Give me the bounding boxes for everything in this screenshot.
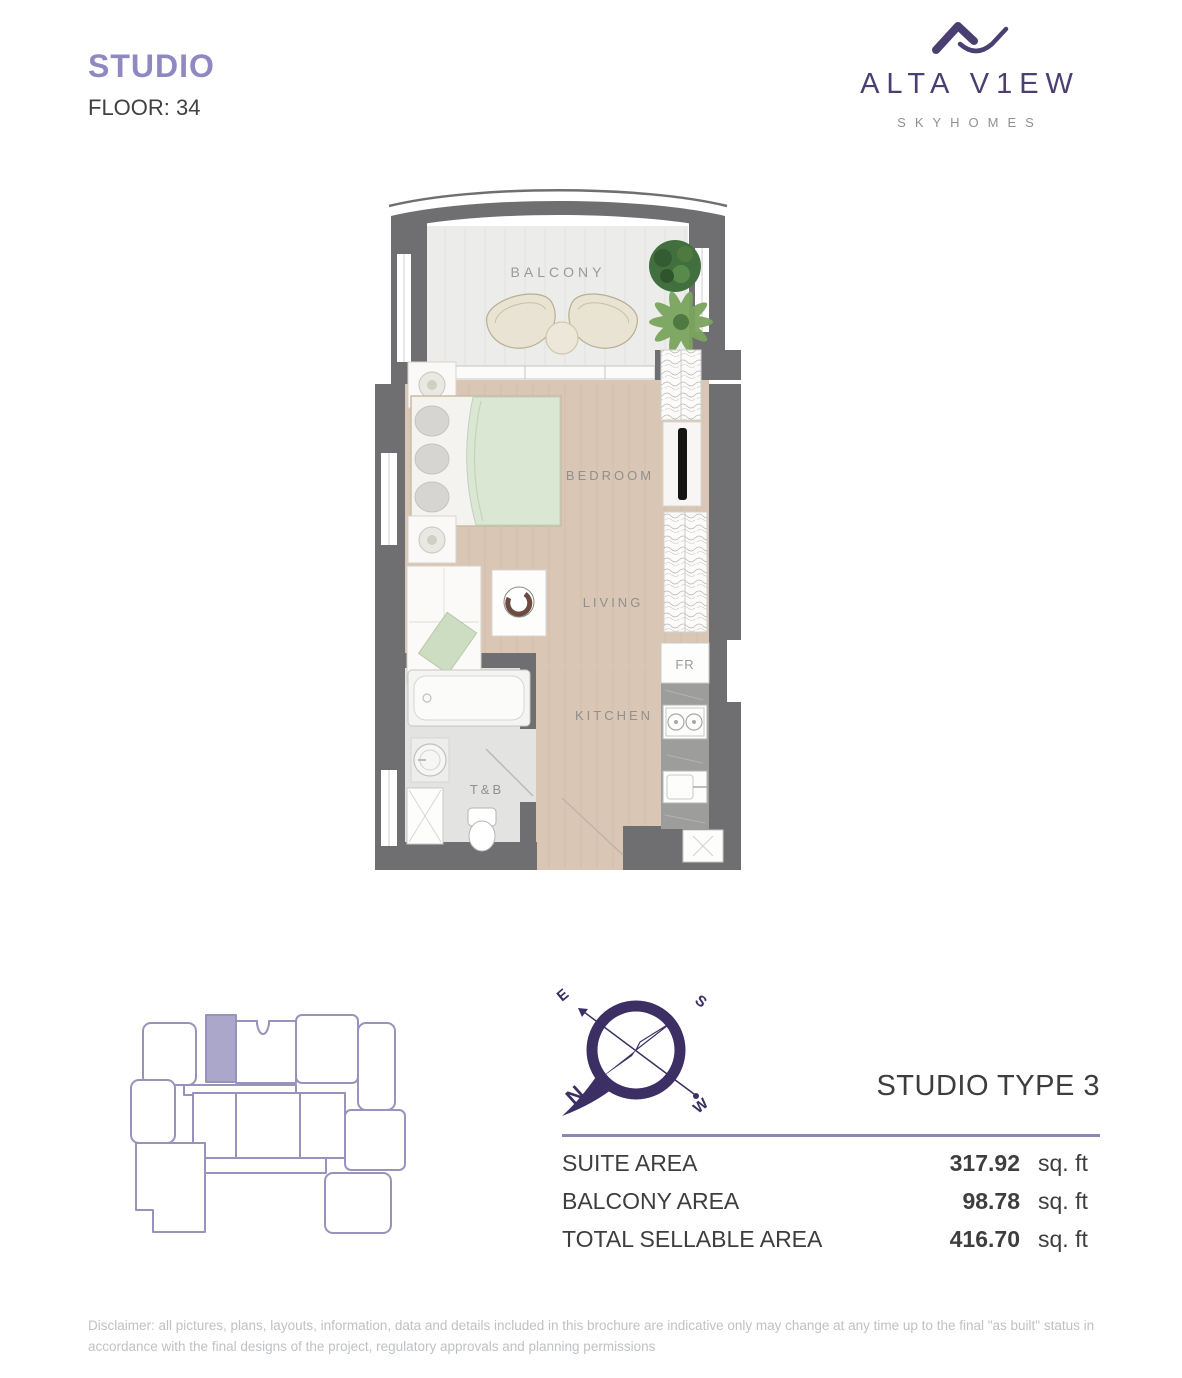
balcony-table — [546, 322, 578, 354]
compass-south-label: S — [692, 992, 710, 1012]
kitchen-sink — [663, 771, 707, 803]
tv-unit — [663, 422, 701, 506]
table-row: SUITE AREA 317.92 sq. ft — [562, 1150, 1100, 1188]
nightstand — [408, 516, 456, 563]
kitchen-label: KITCHEN — [575, 708, 653, 723]
bedroom-label: BEDROOM — [566, 468, 654, 483]
coffee-table — [492, 570, 546, 636]
divider-line — [562, 1134, 1100, 1137]
disclaimer-text: Disclaimer: all pictures, plans, layouts… — [88, 1316, 1104, 1358]
key-plan-drawing — [118, 1000, 418, 1260]
page-title: STUDIO — [88, 48, 215, 85]
bed — [411, 396, 561, 526]
brand-name: ALTA V1EW — [840, 68, 1100, 101]
floor-label: FLOOR: 34 — [88, 95, 215, 121]
stove — [663, 705, 707, 739]
area-label: SUITE AREA — [562, 1150, 915, 1177]
living-label: LIVING — [583, 595, 644, 610]
title-block: STUDIO FLOOR: 34 — [88, 48, 215, 121]
area-unit: sq. ft — [1038, 1188, 1100, 1215]
table-row: TOTAL SELLABLE AREA 416.70 sq. ft — [562, 1226, 1100, 1264]
table-row: BALCONY AREA 98.78 sq. ft — [562, 1188, 1100, 1226]
compass-drawing: E S N W — [548, 978, 718, 1133]
floor-plan: FR — [375, 170, 741, 879]
area-value: 416.70 — [915, 1226, 1020, 1253]
area-label: TOTAL SELLABLE AREA — [562, 1226, 915, 1253]
highlighted-unit — [206, 1015, 236, 1082]
brochure-page: STUDIO FLOOR: 34 ALTA V1EW SKYHOMES — [0, 0, 1182, 1378]
brand-logo: ALTA V1EW SKYHOMES — [840, 14, 1100, 130]
area-value: 98.78 — [915, 1188, 1020, 1215]
bathroom-sink — [411, 738, 449, 782]
area-unit: sq. ft — [1038, 1150, 1100, 1177]
sofa-unit — [407, 566, 481, 684]
fridge: FR — [661, 643, 709, 683]
bathtub — [408, 670, 530, 726]
wave-logo-icon — [922, 14, 1018, 60]
floor-drain — [683, 830, 723, 862]
unit-type-title: STUDIO TYPE 3 — [876, 1070, 1100, 1103]
key-plan — [118, 1000, 418, 1265]
area-value: 317.92 — [915, 1150, 1020, 1177]
brand-tagline: SKYHOMES — [840, 115, 1100, 130]
wardrobe — [664, 512, 707, 632]
compass-west-label: W — [690, 1095, 712, 1118]
area-table: SUITE AREA 317.92 sq. ft BALCONY AREA 98… — [562, 1150, 1100, 1264]
bath-label: T&B — [470, 782, 504, 797]
toilet — [468, 808, 496, 851]
area-label: BALCONY AREA — [562, 1188, 915, 1215]
compass: E S N W — [548, 978, 718, 1138]
shower — [407, 788, 443, 844]
area-unit: sq. ft — [1038, 1226, 1100, 1253]
balcony-sill — [427, 366, 655, 379]
floor-plan-drawing: FR — [375, 170, 741, 874]
fridge-label: FR — [675, 657, 694, 672]
balcony-label: BALCONY — [511, 264, 606, 280]
wardrobe — [661, 350, 701, 420]
compass-east-label: E — [554, 986, 573, 1005]
plant — [649, 240, 701, 292]
